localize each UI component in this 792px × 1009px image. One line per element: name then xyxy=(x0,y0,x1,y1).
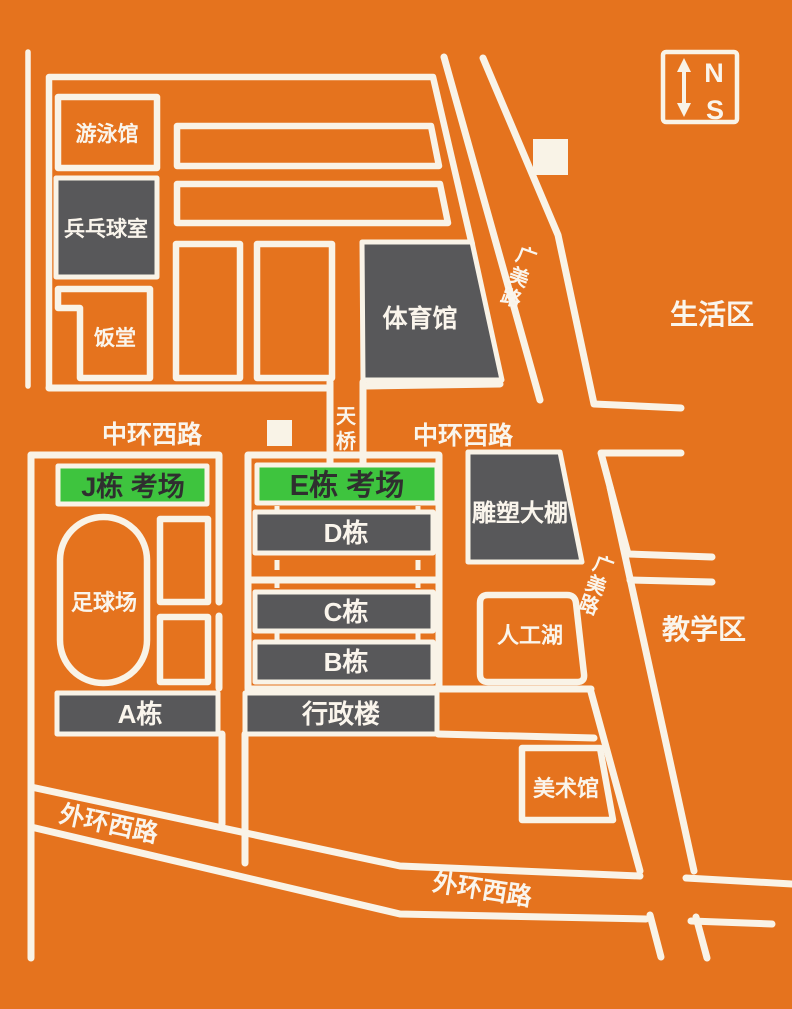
guangmei-south-left-below xyxy=(650,915,661,957)
zhonghuan-west-label: 中环西路 xyxy=(102,421,203,449)
exam-j-label: J栋 考场 xyxy=(81,471,185,502)
building-a-label: A栋 xyxy=(118,699,163,729)
admin-building-label: 行政楼 xyxy=(301,699,380,729)
building-d-label: D栋 xyxy=(324,518,369,548)
canteen-label: 饭堂 xyxy=(93,326,136,350)
court-rect-1 xyxy=(160,519,208,602)
zhonghuan-east-tail xyxy=(601,453,712,557)
artificial-lake-label: 人工湖 xyxy=(497,623,563,648)
sculpture-shed-label: 雕塑大棚 xyxy=(472,499,568,527)
teaching-area-stub xyxy=(630,580,712,582)
pingpong-room-label: 兵乓球室 xyxy=(64,217,148,241)
north-row-2 xyxy=(177,184,448,223)
art-museum-label: 美术馆 xyxy=(533,776,599,801)
compass-box xyxy=(663,52,737,122)
compass: N S xyxy=(663,52,737,125)
campus-map: N S 游泳馆 兵乓球室 饭堂 体育馆 雕塑大棚 人工湖 美术馆 足球场 J栋 … xyxy=(0,0,792,1009)
north-tall-rect-1 xyxy=(176,244,240,378)
gymnasium-label: 体育馆 xyxy=(382,304,457,333)
waihuan-lower-line-east xyxy=(691,921,772,924)
zhonghuan-east-label: 中环西路 xyxy=(413,422,514,450)
swimming-hall-label: 游泳馆 xyxy=(76,122,139,146)
compass-north-label: N xyxy=(704,58,724,88)
zhonghuan-top-east xyxy=(367,384,500,386)
compass-arrow-up-icon xyxy=(677,58,691,72)
court-rect-2 xyxy=(160,617,208,682)
compass-south-label: S xyxy=(706,95,724,125)
football-field-label: 足球场 xyxy=(71,590,137,615)
compass-arrow-down-icon xyxy=(677,103,691,117)
footbridge-label: 天桥 xyxy=(336,406,357,453)
living-area-label: 生活区 xyxy=(670,299,754,330)
north-row-1 xyxy=(177,126,439,166)
building-b-label: B栋 xyxy=(324,647,369,677)
gate-marker-north xyxy=(533,139,568,175)
gate-marker-zhonghuan xyxy=(267,420,292,446)
waihuan-upper-line-east xyxy=(686,878,792,884)
exam-e-label: E栋 考场 xyxy=(290,468,404,502)
museum-row-line xyxy=(438,734,594,738)
north-tall-rect-2 xyxy=(257,244,332,378)
building-c-label: C栋 xyxy=(324,597,369,627)
teaching-area-label: 教学区 xyxy=(662,613,746,645)
guangmei-north-right-line xyxy=(483,58,681,408)
